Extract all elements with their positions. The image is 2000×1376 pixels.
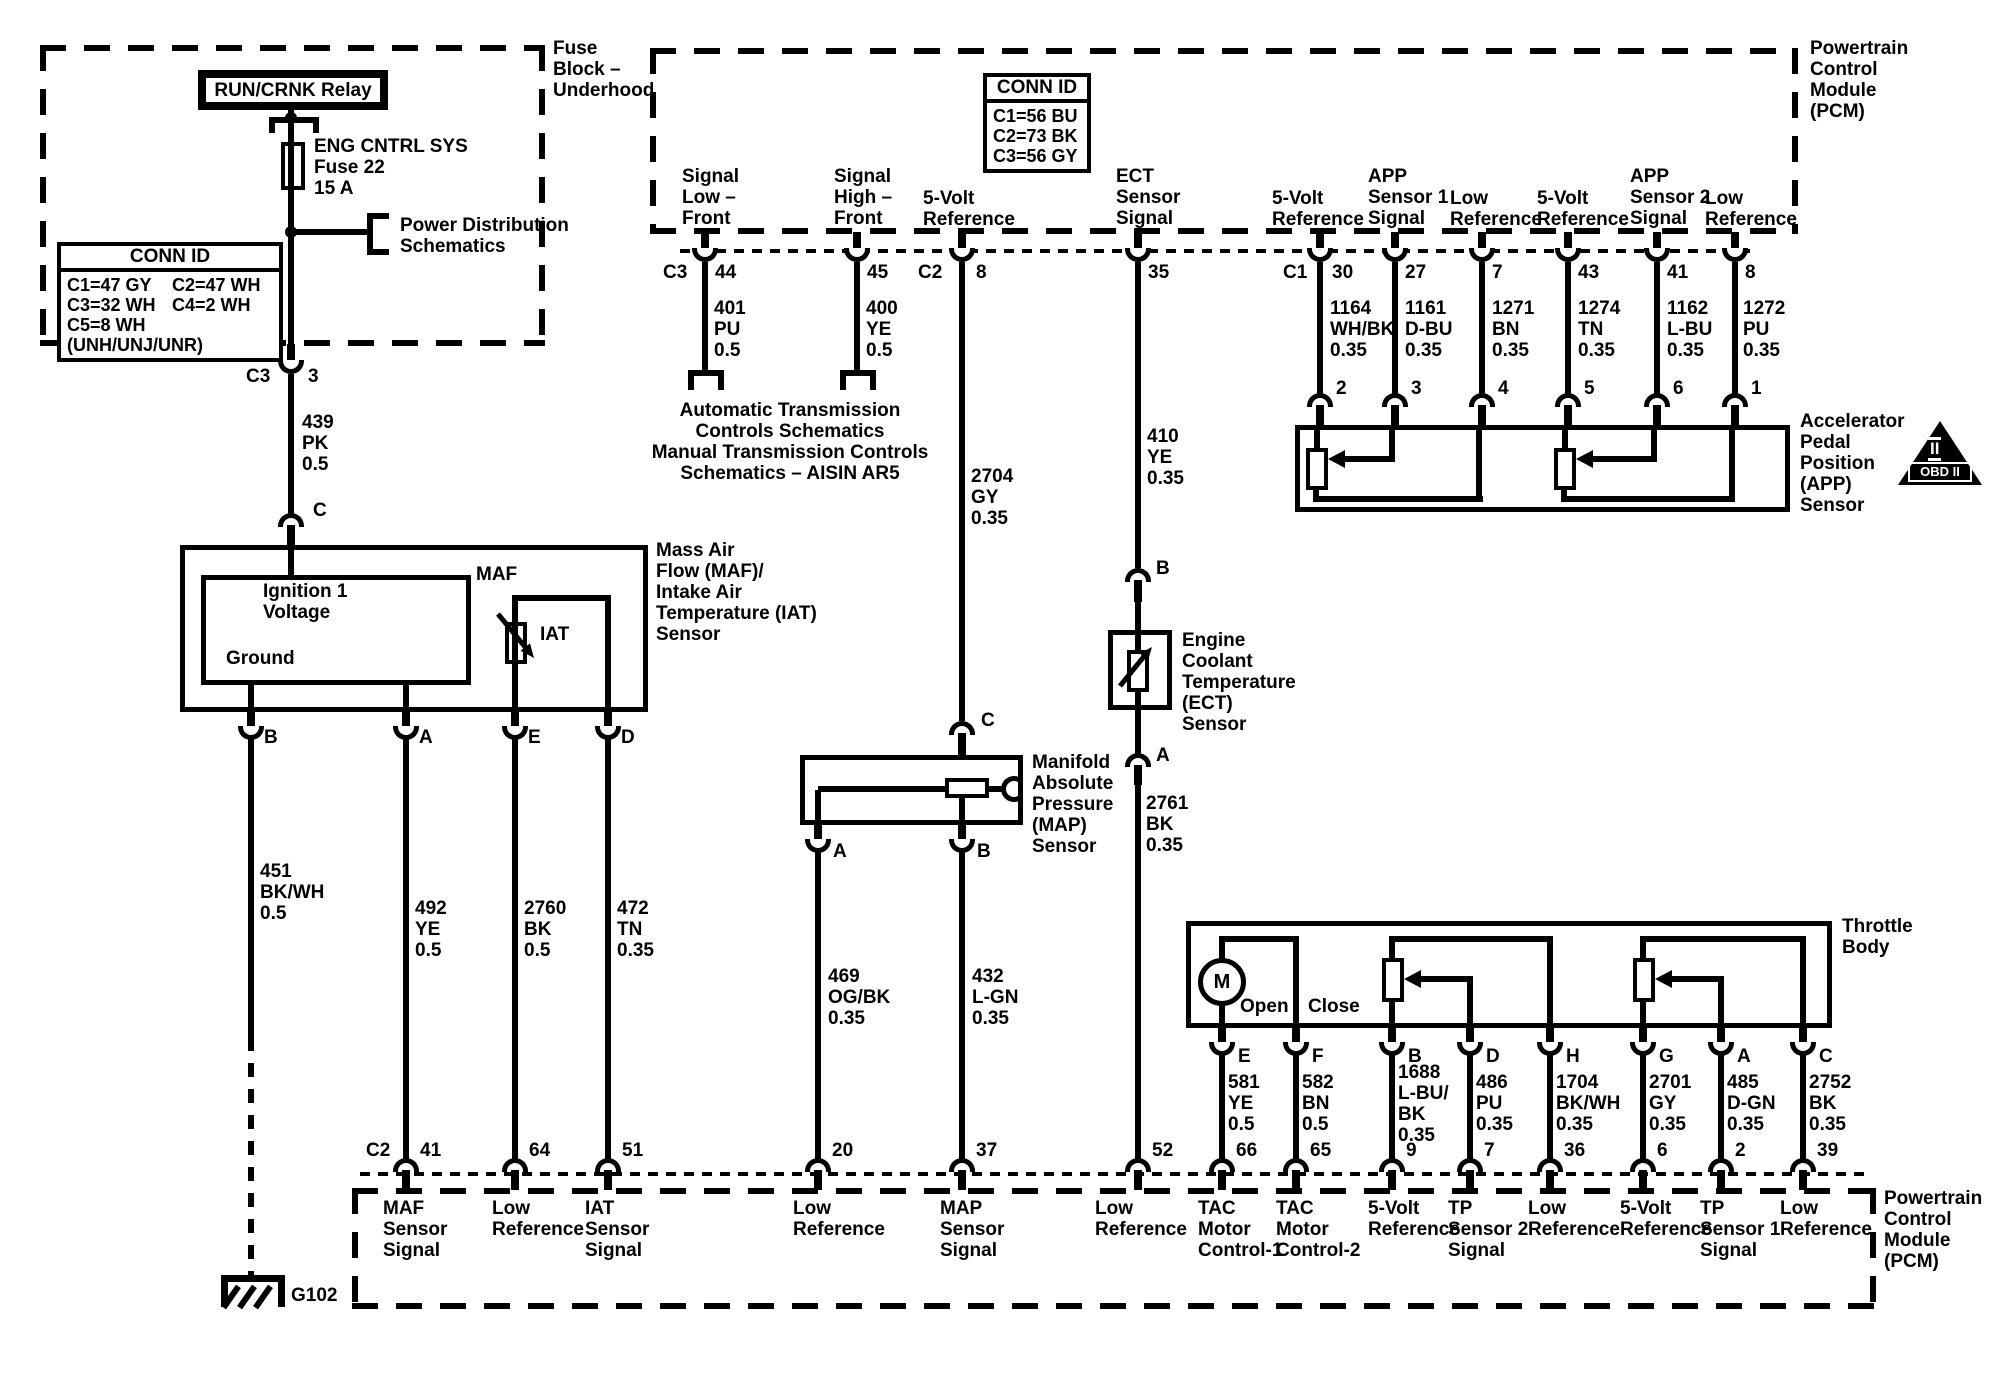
wire-segment	[815, 790, 821, 825]
connector-pin41	[1644, 248, 1670, 262]
wire-segment	[818, 786, 945, 792]
dashed-border	[650, 48, 656, 234]
pin-number: 27	[1405, 262, 1426, 283]
wire-segment	[1479, 262, 1485, 395]
pin-number: 5	[1584, 378, 1595, 399]
wire-segment	[291, 229, 369, 235]
pin-number: 36	[1564, 1140, 1585, 1161]
pcm-signal-label: 5-Volt Reference	[923, 188, 1015, 230]
pin-letter: E	[528, 727, 541, 748]
ect-sensor-label: Engine Coolant Temperature (ECT) Sensor	[1182, 630, 1296, 735]
wire-segment	[1135, 708, 1141, 755]
connector-pin-stub	[1391, 405, 1399, 427]
connector-pin-stub	[1731, 405, 1739, 427]
power-distribution-ref: Power Distribution Schematics	[400, 215, 569, 257]
iat-arrow-icon	[490, 608, 542, 666]
connector-pin-stub	[1218, 1170, 1226, 1190]
pin-number: 7	[1492, 262, 1503, 283]
pin-number: 41	[420, 1140, 441, 1161]
wire-582-label: 582 BN 0.5	[1302, 1072, 1334, 1135]
wire-485-label: 485 D-GN 0.35	[1727, 1072, 1776, 1135]
connector-pin-stub	[1292, 1170, 1300, 1190]
conn-id-cell: C3=32 WH	[67, 295, 172, 315]
pin-number: 37	[976, 1140, 997, 1161]
wire-486-label: 486 PU 0.35	[1476, 1072, 1513, 1135]
pcm-signal-label: Low Reference	[1528, 1198, 1620, 1240]
pin-letter: A	[833, 841, 847, 862]
fuse-label: ENG CNTRL SYS Fuse 22 15 A	[314, 136, 468, 199]
pin-number: 2	[1336, 378, 1347, 399]
pin-letter: C	[313, 500, 327, 521]
wire-469-label: 469 OG/BK 0.35	[828, 966, 890, 1029]
bd: C1=47 GY C2=47 WH C3=32 WH C4=2 WH C5=8 …	[61, 272, 279, 358]
wire-segment	[959, 796, 965, 825]
connector-name: C1	[1283, 262, 1307, 283]
wire-segment	[1293, 936, 1299, 1028]
wire-segment	[248, 738, 254, 1037]
wire-2701-label: 2701 GY 0.35	[1649, 1072, 1691, 1135]
connector-name: C3	[663, 262, 687, 283]
wire-1688-label: 1688 L-BU/ BK 0.35	[1398, 1062, 1449, 1146]
conn-id-header: CONN ID	[61, 246, 279, 272]
connector-pin45	[844, 248, 870, 262]
motor-open-label: Open	[1240, 996, 1289, 1017]
wire-segment	[313, 117, 319, 133]
wire-segment	[367, 249, 389, 255]
pin-number: 9	[1406, 1140, 1417, 1161]
wire-segment	[1640, 1000, 1646, 1028]
wire-segment	[1561, 496, 1735, 502]
connector-pin-stub	[1466, 1170, 1474, 1190]
pcm-bottom-title: Powertrain Control Module (PCM)	[1884, 1188, 1982, 1272]
connector-c3-3	[278, 360, 304, 374]
motor-m-label: M	[1214, 971, 1231, 994]
ignition-voltage-label: Ignition 1 Voltage	[263, 581, 347, 623]
wire-segment	[1591, 456, 1655, 462]
connector-pin-stub	[814, 1170, 822, 1190]
pin-number: 7	[1484, 1140, 1495, 1161]
pcm-signal-label: Low Reference	[793, 1198, 885, 1240]
iat-label: IAT	[540, 624, 569, 645]
pin-number: 8	[1745, 262, 1756, 283]
wire-segment	[605, 738, 611, 1162]
pin-letter: B	[264, 727, 278, 748]
wire-segment	[1421, 976, 1473, 982]
pcm-signal-label: Signal High – Front	[834, 166, 892, 229]
connector-pin44	[692, 248, 718, 262]
ground-label: Ground	[226, 648, 295, 669]
connector-pin-stub	[1799, 1170, 1807, 1190]
wire-segment	[688, 370, 694, 390]
pin-number: 8	[976, 262, 987, 283]
conn-id-row: C2=73 BK	[993, 126, 1081, 146]
wire-1272-label: 1272 PU 0.35	[1743, 298, 1785, 361]
wire-segment	[1314, 425, 1320, 450]
pin-letter: B	[977, 841, 991, 862]
connector-pin-stub	[1653, 405, 1661, 427]
wire-segment	[702, 262, 708, 372]
wire-2760-label: 2760 BK 0.5	[524, 898, 566, 961]
connector-pin-stub	[1564, 405, 1572, 427]
wire-segment	[248, 683, 254, 712]
pin-number: 45	[867, 262, 888, 283]
connector-pin-stub	[604, 1170, 612, 1190]
pin-number: 64	[529, 1140, 550, 1161]
dashed-border	[539, 45, 545, 346]
run-crnk-relay-box: RUN/CRNK Relay	[198, 70, 388, 110]
conn-id-cell: C1=47 GY	[67, 275, 172, 295]
bd: C1=56 BU C2=73 BK C3=56 GY	[987, 103, 1087, 169]
wire-segment	[1317, 262, 1323, 395]
conn-id-row: C3=56 GY	[993, 146, 1081, 166]
connector-pin-stub	[1134, 765, 1142, 785]
pcm-signal-label: TP Sensor 2 Signal	[1448, 1198, 1528, 1261]
shape	[1120, 654, 1146, 686]
conn-id-cell: C2=47 WH	[172, 275, 273, 295]
pin-number: 20	[832, 1140, 853, 1161]
fuse-icon	[281, 142, 305, 190]
pcm-signal-label: APP Sensor 2 Signal	[1630, 166, 1710, 229]
wire-segment	[959, 262, 965, 721]
wire-segment	[1640, 1054, 1646, 1162]
wire-segment	[1135, 262, 1141, 568]
wire-segment	[1476, 425, 1482, 502]
wire-492-label: 492 YE 0.5	[415, 898, 447, 961]
wire-segment	[1467, 1054, 1473, 1162]
pin-letter: C	[981, 710, 995, 731]
pin-number: 2	[1735, 1140, 1746, 1161]
connector-pin8	[949, 248, 975, 262]
shape	[498, 614, 526, 648]
wire-segment	[1313, 496, 1483, 502]
pcm-signal-label: 5-Volt Reference	[1620, 1198, 1712, 1240]
connector-pin-stub	[1546, 1170, 1554, 1190]
pcm-signal-label: ECT Sensor Signal	[1116, 166, 1180, 229]
pcm-signal-label: Low Reference	[1705, 188, 1797, 230]
motor-close-label: Close	[1308, 996, 1360, 1017]
connector-pin35	[1125, 248, 1151, 262]
ground-symbol-part	[278, 1275, 285, 1307]
wire-segment	[1672, 976, 1724, 982]
connector-pin-stub	[1134, 580, 1142, 602]
wire-segment	[1547, 936, 1553, 1028]
maf-sensor-label: Mass Air Flow (MAF)/ Intake Air Temperat…	[656, 540, 817, 645]
wiring-diagram: Fuse Block – Underhood RUN/CRNK Relay EN…	[0, 0, 2000, 1376]
pin-number: 51	[622, 1140, 643, 1161]
wire-400-label: 400 YE 0.5	[866, 298, 898, 361]
wire-1164-label: 1164 WH/BK 0.35	[1330, 298, 1394, 361]
wire-1704-label: 1704 BK/WH 0.35	[1556, 1072, 1620, 1135]
wire-segment	[605, 595, 611, 712]
wire-segment	[854, 262, 860, 372]
conn-id-header: CONN ID	[987, 77, 1087, 103]
pin-letter: A	[1737, 1046, 1751, 1067]
pcm-signal-label: IAT Sensor Signal	[585, 1198, 649, 1261]
wire-1274-label: 1274 TN 0.35	[1578, 298, 1620, 361]
wire-segment	[1729, 425, 1735, 502]
connector-pin-stub	[1478, 405, 1486, 427]
pin-letter: E	[1238, 1046, 1251, 1067]
pin-number: 65	[1310, 1140, 1331, 1161]
wire-segment	[1640, 936, 1806, 942]
pin-letter: B	[1156, 558, 1170, 579]
pin-letter: D	[621, 727, 635, 748]
conn-id-row: C1=56 BU	[993, 106, 1081, 126]
pin-letter: D	[1486, 1046, 1500, 1067]
tac-motor-icon: M	[1198, 958, 1246, 1006]
pin-number: 66	[1236, 1140, 1257, 1161]
wire-2704-label: 2704 GY 0.35	[971, 466, 1013, 529]
connector-name: C2	[366, 1140, 390, 1161]
wire-2752-label: 2752 BK 0.35	[1809, 1072, 1851, 1135]
wire-581-label: 581 YE 0.5	[1228, 1072, 1260, 1135]
pin-letter: A	[1156, 745, 1170, 766]
map-sensor-label: Manifold Absolute Pressure (MAP) Sensor	[1032, 752, 1113, 857]
connector-pin-stub	[1134, 1170, 1142, 1190]
wire-segment	[1219, 1054, 1225, 1162]
wire-segment	[1800, 936, 1806, 1028]
pcm-signal-label: Low Reference	[1780, 1198, 1872, 1240]
ground-g102-label: G102	[291, 1285, 337, 1306]
wire-segment	[403, 683, 409, 712]
connector-pin-stub	[511, 1170, 519, 1190]
connector-pin-stub	[1316, 405, 1324, 427]
dashed-border	[40, 45, 46, 346]
wire-segment	[959, 851, 965, 1162]
pin-letter: H	[1566, 1046, 1580, 1067]
wire-451-label: 451 BK/WH 0.5	[260, 861, 324, 924]
dashed-border	[352, 1188, 1876, 1194]
fuse-block-title: Fuse Block – Underhood	[553, 38, 654, 101]
pin-number: 52	[1152, 1140, 1173, 1161]
pin-letter: C	[1819, 1046, 1833, 1067]
pin-number: 39	[1817, 1140, 1838, 1161]
wire-segment	[1389, 1054, 1395, 1162]
wire-segment	[840, 370, 846, 390]
dashed-border	[352, 1188, 358, 1309]
wire-segment	[1565, 262, 1571, 395]
map-port-icon	[1001, 776, 1027, 802]
tp1-wiper-arrow-icon	[1404, 970, 1421, 988]
tp2-pot-icon	[1633, 958, 1655, 1002]
wire-1162-label: 1162 L-BU 0.35	[1667, 298, 1712, 361]
app-pot1-icon	[1306, 448, 1328, 490]
transmission-ref-note: Automatic Transmission Controls Schemati…	[640, 400, 940, 484]
pin-number: 1	[1751, 378, 1762, 399]
connector-pin43	[1555, 248, 1581, 262]
pin-number: 30	[1332, 262, 1353, 283]
wire-segment	[288, 374, 294, 515]
wire-segment-dashed	[248, 1037, 254, 1277]
pin-letter: A	[419, 727, 433, 748]
pcm-signal-label: APP Sensor 1 Signal	[1368, 166, 1448, 229]
wire-segment	[1135, 783, 1141, 1162]
wire-segment	[269, 117, 275, 133]
pin-number: 43	[1578, 262, 1599, 283]
connector-pin-stub	[958, 1170, 966, 1190]
pcm-signal-label: 5-Volt Reference	[1368, 1198, 1460, 1240]
wire-432-label: 432 L-GN 0.35	[972, 966, 1018, 1029]
maf-box-label: MAF	[476, 564, 517, 585]
wire-segment	[718, 370, 724, 390]
pcm-signal-label: Low Reference	[1450, 188, 1542, 230]
wire-segment	[1562, 425, 1568, 450]
pcm-signal-label: TP Sensor 1 Signal	[1700, 1198, 1780, 1261]
wire-segment	[403, 738, 409, 1162]
wire-472-label: 472 TN 0.35	[617, 898, 654, 961]
conn-id-table-pcm: CONN ID C1=56 BU C2=73 BK C3=56 GY	[983, 73, 1091, 173]
pin-number: 41	[1667, 262, 1688, 283]
wire-segment	[870, 370, 876, 390]
ground-icon	[221, 1275, 285, 1282]
connector-pin8b	[1722, 248, 1748, 262]
junction-dot	[285, 112, 297, 124]
wire-segment	[512, 595, 611, 601]
wire-401-label: 401 PU 0.5	[714, 298, 746, 361]
connector-pin-stub	[958, 733, 966, 757]
connector-name: C2	[918, 262, 942, 283]
pcm-signal-label: MAF Sensor Signal	[383, 1198, 447, 1261]
wire-segment	[1732, 262, 1738, 395]
pcm-signal-label: TAC Motor Control-1	[1198, 1198, 1282, 1261]
tp2-wiper-arrow-icon	[1655, 970, 1672, 988]
connector-pin27	[1382, 248, 1408, 262]
wire-segment	[1219, 936, 1299, 942]
connector-pin-stub	[287, 525, 295, 547]
connector-pin-stub	[1717, 1170, 1725, 1190]
pin-number: 3	[308, 366, 319, 387]
wire-segment	[1718, 976, 1724, 1028]
connector-pin-stub	[1639, 1170, 1647, 1190]
connector-pin7	[1469, 248, 1495, 262]
pcm-signal-label: TAC Motor Control-2	[1276, 1198, 1360, 1261]
wire-segment	[1547, 1054, 1553, 1162]
conn-id-table-fuse-block: CONN ID C1=47 GY C2=47 WH C3=32 WH C4=2 …	[57, 242, 283, 362]
wire-segment	[815, 851, 821, 1162]
pcm-signal-label: Low Reference	[492, 1198, 584, 1240]
wire-segment	[288, 545, 294, 577]
pin-number: 4	[1498, 378, 1509, 399]
connector-name: C3	[246, 366, 270, 387]
dashed-border	[650, 48, 1798, 54]
pin-number: 6	[1673, 378, 1684, 399]
wire-1271-label: 1271 BN 0.35	[1492, 298, 1534, 361]
connector-pin30	[1307, 248, 1333, 262]
wire-segment	[1718, 1054, 1724, 1162]
ect-arrow-icon	[1110, 638, 1160, 696]
wire-segment	[1389, 1000, 1395, 1028]
pcm-signal-label: 5-Volt Reference	[1272, 188, 1364, 230]
app-pot2-icon	[1554, 448, 1576, 490]
conn-id-cell: C5=8 WH (UNH/UNJ/UNR)	[67, 315, 273, 355]
wire-segment	[367, 213, 389, 219]
wire-1161-label: 1161 D-BU 0.35	[1405, 298, 1453, 361]
connector-pin-stub	[402, 1170, 410, 1190]
wire-segment	[1467, 976, 1473, 1028]
wire-segment	[1219, 1004, 1225, 1028]
pcm-signal-label: Low Reference	[1095, 1198, 1187, 1240]
dashed-border	[352, 1303, 1876, 1309]
wire-segment	[512, 738, 518, 1162]
wire-segment	[1293, 1054, 1299, 1162]
wire-439-label: 439 PK 0.5	[302, 412, 334, 475]
wire-segment	[1343, 456, 1393, 462]
pin-number: 35	[1148, 262, 1169, 283]
map-element-icon	[945, 778, 989, 798]
run-crnk-relay-label: RUN/CRNK Relay	[214, 80, 371, 101]
pin-number: 44	[715, 262, 736, 283]
pin-number: 6	[1657, 1140, 1668, 1161]
pcm-signal-label: 5-Volt Reference	[1537, 188, 1629, 230]
throttle-body-label: Throttle Body	[1842, 916, 1913, 958]
wire-segment	[288, 190, 294, 345]
pcm-signal-label: MAP Sensor Signal	[940, 1198, 1004, 1261]
dashed-border	[40, 45, 545, 51]
wire-2761-label: 2761 BK 0.35	[1146, 793, 1188, 856]
obd2-label: OBD II	[1908, 462, 1972, 482]
pcm-signal-label: Signal Low – Front	[682, 166, 739, 229]
pcm-top-title: Powertrain Control Module (PCM)	[1810, 38, 1908, 122]
connector-pin-stub	[1388, 1170, 1396, 1190]
wire-segment	[1654, 262, 1660, 395]
conn-id-cell: C4=2 WH	[172, 295, 273, 315]
pin-number: 3	[1411, 378, 1422, 399]
wire-segment	[1800, 1054, 1806, 1162]
wire-410-label: 410 YE 0.35	[1147, 426, 1184, 489]
wire-segment	[1389, 936, 1553, 942]
wire-segment	[1135, 600, 1141, 632]
obd2-numeral: II	[1928, 437, 1941, 461]
app-sensor-label: Accelerator Pedal Position (APP) Sensor	[1800, 411, 1905, 516]
pin-letter: G	[1659, 1046, 1674, 1067]
pin-letter: F	[1312, 1046, 1324, 1067]
tp1-pot-icon	[1382, 958, 1404, 1002]
connector-line	[680, 249, 1750, 253]
